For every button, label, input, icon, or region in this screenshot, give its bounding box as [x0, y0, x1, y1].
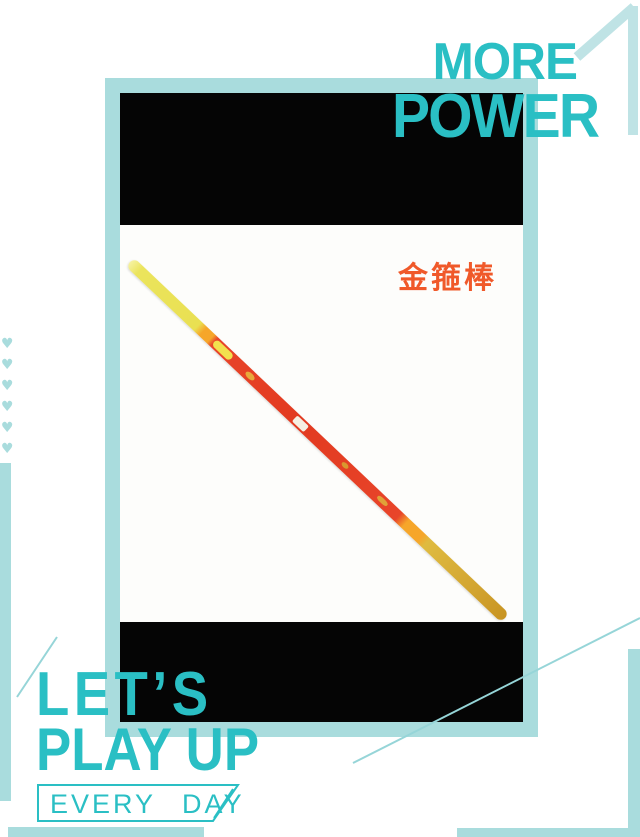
left-vertical-bar [0, 463, 11, 801]
heart-icon: ♥ [1, 359, 14, 372]
bottom-left-bar [8, 827, 204, 837]
headline-power: POWER [392, 86, 598, 148]
heart-icon: ♥ [1, 338, 14, 351]
heart-icon: ♥ [1, 443, 14, 456]
headline-play-up: PLAY UP [36, 720, 259, 780]
heart-icon: ♥ [1, 401, 14, 414]
headline-more: MORE [433, 36, 577, 88]
rod-gold-mark [376, 495, 388, 507]
heart-icon: ♥ [1, 380, 14, 393]
corner-one-vertical-bar [628, 6, 638, 135]
product-name-cn: 金箍棒 [398, 253, 497, 297]
promo-poster: 金箍棒 MORE POWER LET’S PLAY UP EVERY DAY ♥… [0, 0, 640, 837]
corner-one-diagonal [577, 7, 634, 57]
hearts-column: ♥ ♥ ♥ ♥ ♥ ♥ [1, 338, 14, 456]
bottom-right-bracket-horizontal [457, 828, 640, 837]
bottom-right-bracket-vertical [628, 649, 640, 837]
rod-gold-emblem [244, 370, 256, 381]
product-card [105, 78, 538, 737]
heart-icon: ♥ [1, 422, 14, 435]
tagline-every-day: EVERY DAY [50, 791, 245, 818]
rod-gold-mark [340, 461, 349, 470]
